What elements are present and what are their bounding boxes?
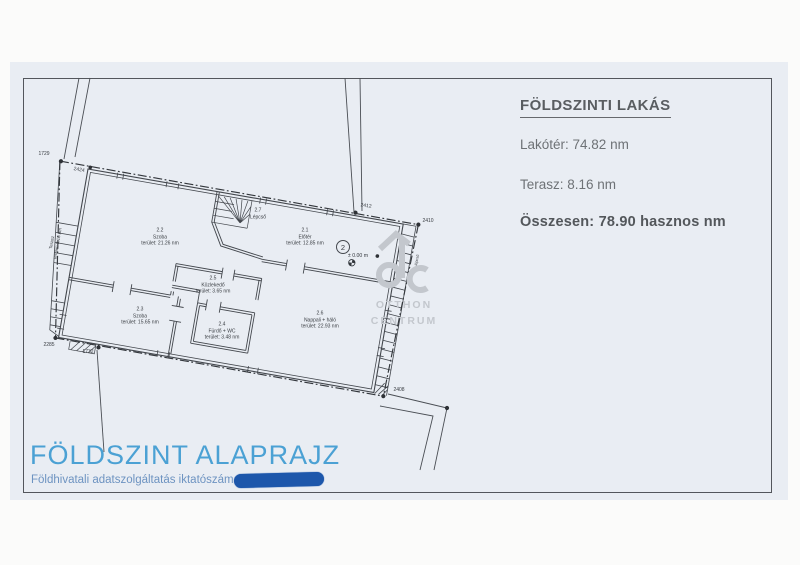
position-marker-2: 2 [336,240,350,254]
otthon-centrum-watermark: OTTHON CENTRUM [364,230,444,330]
room-label-eloter: 2.1 Előtér terület: 12.85 nm [286,227,324,247]
registry-number-label: Földhivatali adatszolgáltatás iktatószám… [31,474,243,486]
survey-label-1729: 1729 [38,151,49,157]
info-panel-title: FÖLDSZINTI LAKÁS [520,97,671,118]
survey-label-1732: 1732 [82,349,93,355]
room-label-nappali-halo: 2.6 Nappali + háló terület: 22.93 nm [301,310,339,330]
living-area-line: Lakótér: 74.82 nm [520,137,629,152]
total-area-line: Összesen: 78.90 hasznos nm [520,214,726,230]
survey-label-2408: 2408 [393,387,404,393]
survey-label-2285: 2285 [43,342,54,348]
level-marker: ± 0.00 m [348,253,368,259]
terrace-area-line: Terasz: 8.16 nm [520,177,616,192]
survey-label-2410: 2410 [422,218,433,224]
plan-title: FÖLDSZINT ALAPRAJZ [30,440,340,471]
info-panel: FÖLDSZINTI LAKÁS Lakótér: 74.82 nm Teras… [520,97,671,118]
room-label-kozlekedo: 2.5 Közlekedő terület: 3.65 nm [196,275,231,295]
watermark-line2: CENTRUM [371,314,438,330]
watermark-line1: OTTHON [376,298,432,314]
room-label-szoba-22: 2.2 Szoba terület: 21.26 nm [141,227,179,247]
registry-number-redaction [234,472,324,488]
room-label-lepcso: 2.7 Lépcső [250,208,266,221]
room-label-furdo-wc: 2.4 Fürdő + WC terület: 3.48 nm [205,321,240,341]
scanned-floorplan-page: OTTHON CENTRUM [0,0,800,565]
otthon-centrum-logo-icon [372,230,436,298]
room-label-szoba-23: 2.3 Szoba terület: 15.65 nm [121,306,159,326]
